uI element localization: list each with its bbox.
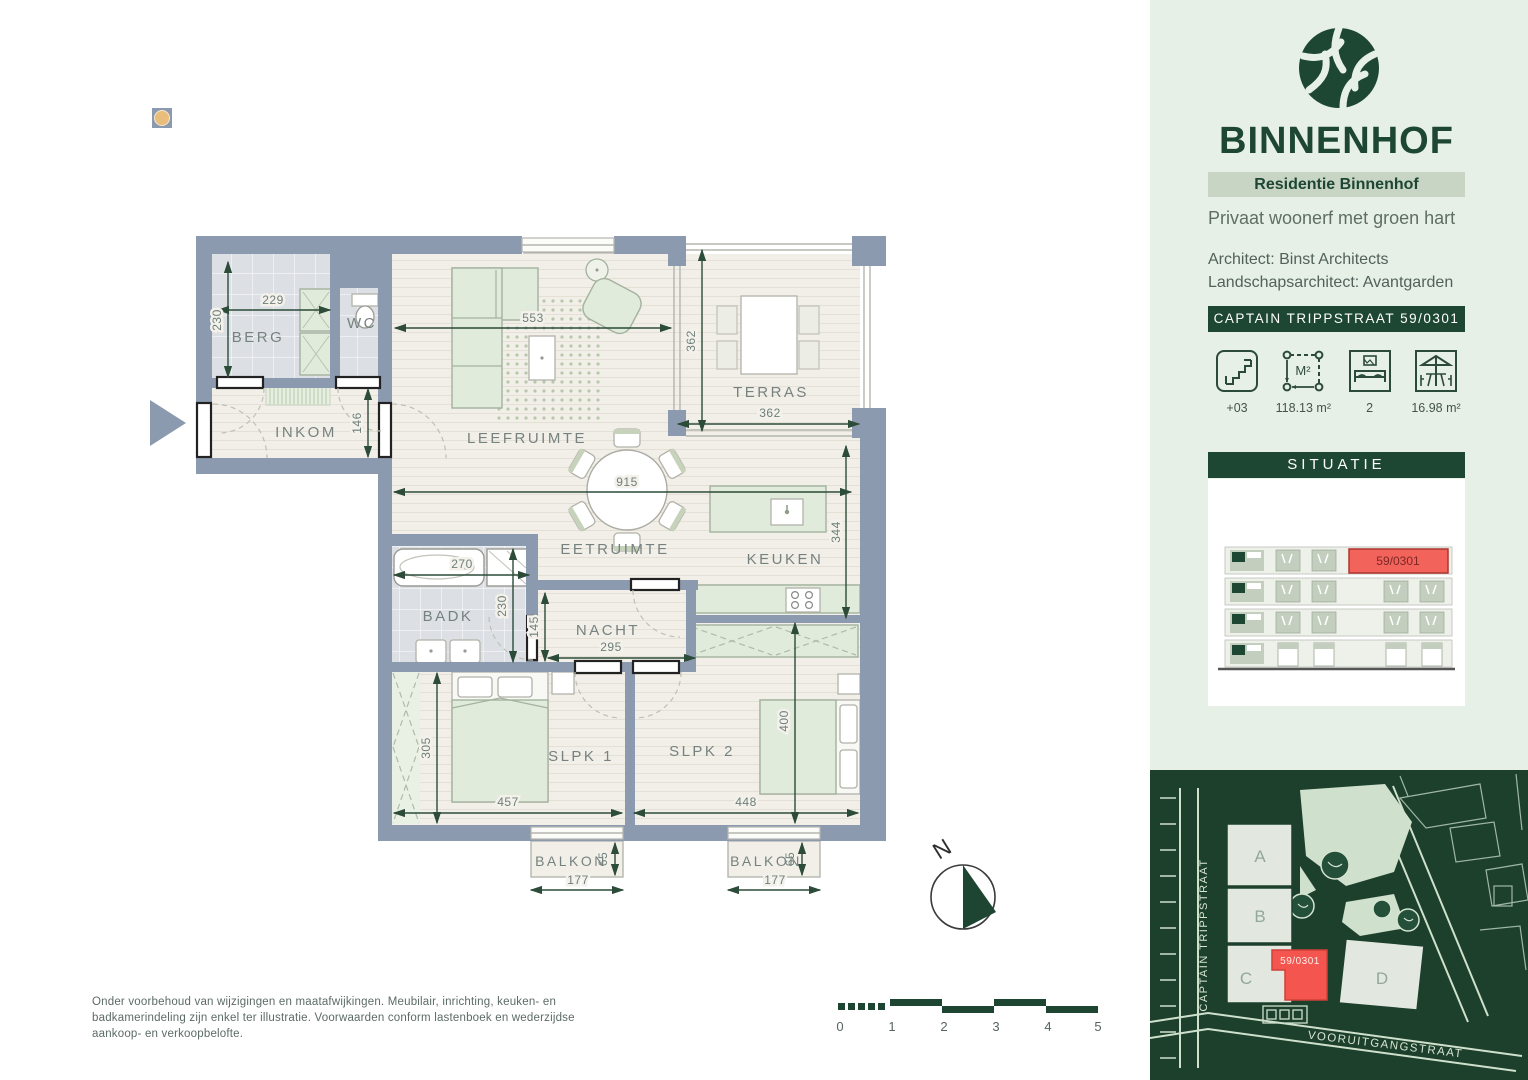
terrace-table bbox=[741, 296, 797, 374]
dim-label: 177 bbox=[764, 873, 786, 887]
nightstand bbox=[552, 672, 574, 694]
terrace-chair bbox=[799, 341, 819, 369]
dim-label: 448 bbox=[735, 795, 757, 809]
kitchen-counter bbox=[690, 585, 860, 613]
spec-terrace-value: 16.98 m² bbox=[1407, 401, 1465, 415]
dim-label: 146 bbox=[350, 412, 364, 434]
room-label-inkom: INKOM bbox=[275, 424, 337, 441]
elevation-unit-label: 59/0301 bbox=[1376, 554, 1420, 568]
dim-label: 915 bbox=[616, 475, 638, 489]
floorplan-drawing: 229 553 362 915 270 295 457 448 177 177 … bbox=[0, 0, 1150, 1080]
pillow bbox=[840, 750, 857, 788]
dim-label: 230 bbox=[210, 309, 224, 331]
site-map: 59/0301 A B C D CAPTAIN TRIPPSTRAAT VOOR… bbox=[1150, 770, 1528, 1080]
street-label-left: CAPTAIN TRIPPSTRAAT bbox=[1198, 858, 1210, 1011]
entrance-arrow bbox=[150, 400, 186, 446]
kitchen-island bbox=[710, 486, 826, 532]
spec-terrace: 16.98 m² bbox=[1407, 348, 1465, 415]
terrace-chair bbox=[717, 306, 737, 334]
quality-stamp bbox=[152, 108, 172, 128]
toilet bbox=[352, 294, 378, 306]
scale-bar: 0 1 2 3 4 5 bbox=[836, 999, 1101, 1034]
building-label-b: B bbox=[1254, 907, 1265, 926]
brand-title: BINNENHOF bbox=[1208, 120, 1465, 163]
pillow bbox=[458, 677, 492, 697]
room-label-balkon: BALKON bbox=[730, 853, 802, 869]
tagline: Privaat woonerf met groen hart bbox=[1208, 208, 1465, 229]
room-label-balkon: BALKON bbox=[535, 853, 607, 869]
residence-name: Residentie Binnenhof bbox=[1208, 172, 1465, 197]
building-label-d: D bbox=[1376, 969, 1388, 988]
terrace-chair bbox=[717, 341, 737, 369]
dim-label: 457 bbox=[497, 795, 519, 809]
spec-area: M² 118.13 m² bbox=[1274, 348, 1332, 415]
dim-label: 229 bbox=[262, 293, 284, 307]
dining-table bbox=[587, 450, 667, 530]
spec-floor-value: +03 bbox=[1208, 401, 1266, 415]
north-compass: N bbox=[928, 833, 996, 929]
dim-label: 400 bbox=[777, 710, 791, 732]
dim-label: 344 bbox=[829, 521, 843, 543]
scale-tick: 3 bbox=[992, 1019, 999, 1034]
room-label-leefruimte: LEEFRUIMTE bbox=[467, 430, 587, 447]
address-banner: CAPTAIN TRIPPSTRAAT 59/0301 bbox=[1208, 306, 1465, 332]
sofa bbox=[452, 268, 502, 408]
m2-glyph: M² bbox=[1296, 363, 1312, 378]
dim-label: 177 bbox=[567, 873, 589, 887]
dim-label: 305 bbox=[419, 737, 433, 759]
pillow bbox=[840, 705, 857, 743]
dim-label: 362 bbox=[684, 330, 698, 352]
wardrobe bbox=[690, 625, 858, 657]
spec-bedrooms-value: 2 bbox=[1341, 401, 1399, 415]
spec-floor: +03 bbox=[1208, 348, 1266, 415]
floorplan-sheet: 229 553 362 915 270 295 457 448 177 177 … bbox=[0, 0, 1528, 1080]
dim-label: 145 bbox=[527, 616, 541, 638]
map-unit-label: 59/0301 bbox=[1280, 956, 1320, 967]
cooktop bbox=[786, 588, 820, 612]
room-label-eetruimte: EETRUIMTE bbox=[560, 541, 669, 558]
bedrooms-icon bbox=[1347, 348, 1393, 394]
dim-label: 362 bbox=[759, 406, 781, 420]
room-label-slpk1: SLPK 1 bbox=[548, 748, 614, 765]
pillow bbox=[498, 677, 532, 697]
dim-label: 295 bbox=[600, 640, 622, 654]
building-label-a: A bbox=[1254, 847, 1266, 866]
disclaimer-text: Onder voorbehoud van wijzigingen en maat… bbox=[92, 994, 577, 1042]
room-label-badk: BADK bbox=[423, 608, 474, 625]
architect-line: Architect: Binst Architects bbox=[1208, 248, 1465, 271]
binnenhof-logo-icon bbox=[1150, 26, 1528, 115]
wardrobe bbox=[392, 672, 420, 824]
dim-label: 553 bbox=[522, 311, 544, 325]
nightstand bbox=[838, 674, 860, 694]
scale-tick: 5 bbox=[1094, 1019, 1101, 1034]
room-label-berg: BERG bbox=[232, 329, 285, 346]
situatie-banner: SITUATIE bbox=[1208, 452, 1465, 478]
terrace-icon bbox=[1413, 348, 1459, 394]
scale-tick: 2 bbox=[940, 1019, 947, 1034]
entrance-door bbox=[197, 403, 211, 457]
scale-tick: 0 bbox=[836, 1019, 843, 1034]
situatie-elevation: 59/0301 bbox=[1208, 479, 1465, 706]
spec-icons-row: +03 M² 118.13 m² 2 bbox=[1208, 348, 1465, 415]
stairs-icon bbox=[1214, 348, 1260, 394]
scale-tick: 1 bbox=[888, 1019, 895, 1034]
scale-tick: 4 bbox=[1044, 1019, 1051, 1034]
room-label-terras: TERRAS bbox=[733, 384, 809, 401]
terrace-chair bbox=[799, 306, 819, 334]
landscape-architect-line: Landschapsarchitect: Avantgarden bbox=[1208, 271, 1465, 294]
info-sidebar: BINNENHOF Residentie Binnenhof Privaat w… bbox=[1150, 0, 1528, 1080]
room-label-wc: WC bbox=[347, 315, 377, 332]
architect-credits: Architect: Binst Architects Landschapsar… bbox=[1208, 248, 1465, 294]
dim-label: 270 bbox=[451, 557, 473, 571]
area-icon: M² bbox=[1280, 348, 1326, 394]
north-label: N bbox=[928, 833, 956, 864]
spec-area-value: 118.13 m² bbox=[1274, 401, 1332, 415]
room-label-keuken: KEUKEN bbox=[747, 551, 824, 568]
building-label-c: C bbox=[1240, 969, 1252, 988]
room-label-nacht: NACHT bbox=[576, 622, 640, 639]
room-label-slpk2: SLPK 2 bbox=[669, 743, 735, 760]
spec-bedrooms: 2 bbox=[1341, 348, 1399, 415]
dim-label: 230 bbox=[495, 595, 509, 617]
